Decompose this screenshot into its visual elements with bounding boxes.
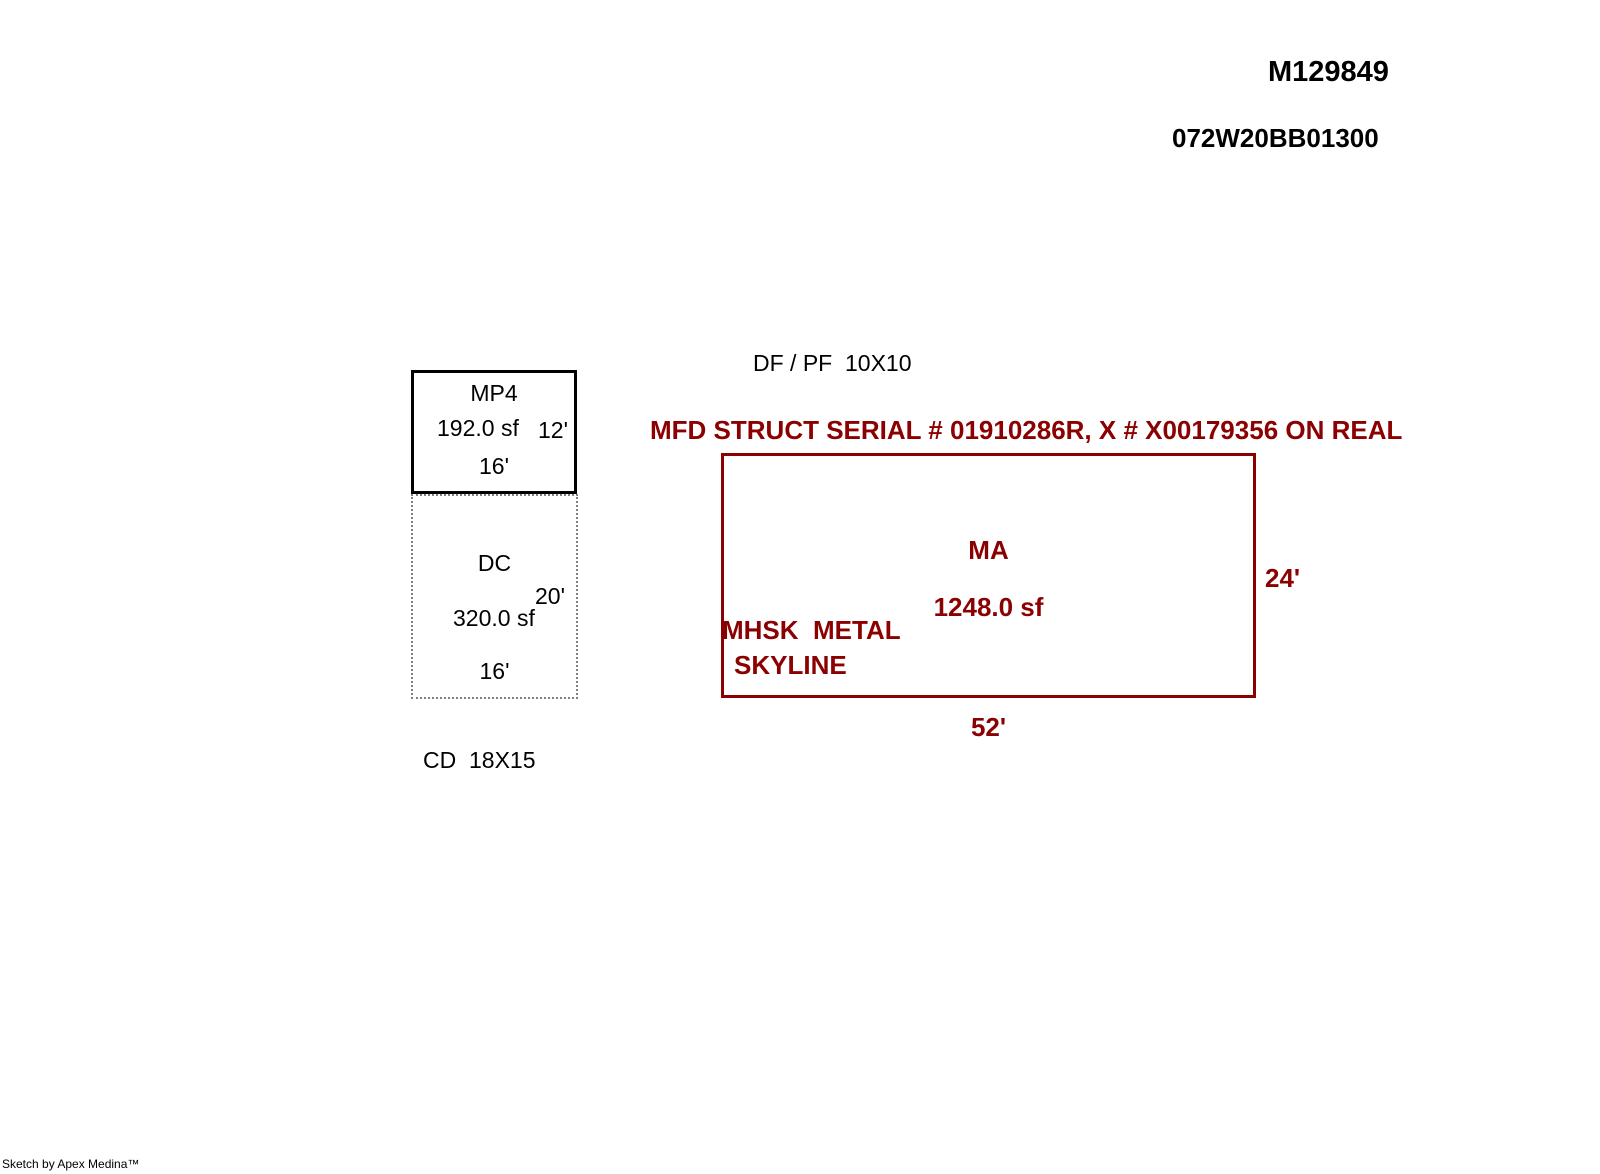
mp4-area: 192.0 sf <box>437 417 519 440</box>
ma-code: MA <box>721 537 1256 563</box>
mp4-code: MP4 <box>411 382 577 405</box>
sketch-id: M129849 <box>1268 58 1389 87</box>
ma-desc-line1: MHSK METAL <box>722 617 901 643</box>
dc-width-dim: 16' <box>411 660 578 683</box>
ma-desc-line2: SKYLINE <box>734 652 847 678</box>
mp4-width-dim: 16' <box>411 455 577 478</box>
mp4-height-dim: 12' <box>538 419 568 442</box>
ma-width-dim: 52' <box>721 714 1256 740</box>
df-pf-label: DF / PF 10X10 <box>753 352 912 375</box>
parcel-id: 072W20BB01300 <box>1172 125 1379 151</box>
dc-area: 320.0 sf <box>453 607 535 630</box>
dc-height-dim: 20' <box>535 585 565 608</box>
sketch-page: M129849 072W20BB01300 DF / PF 10X10 MP4 … <box>0 0 1600 1174</box>
ma-height-dim: 24' <box>1265 565 1300 591</box>
dc-code: DC <box>411 552 578 575</box>
footer-credit: Sketch by Apex Medina™ <box>2 1158 139 1170</box>
serial-note: MFD STRUCT SERIAL # 01910286R, X # X0017… <box>650 417 1402 443</box>
cd-label: CD 18X15 <box>423 749 536 772</box>
